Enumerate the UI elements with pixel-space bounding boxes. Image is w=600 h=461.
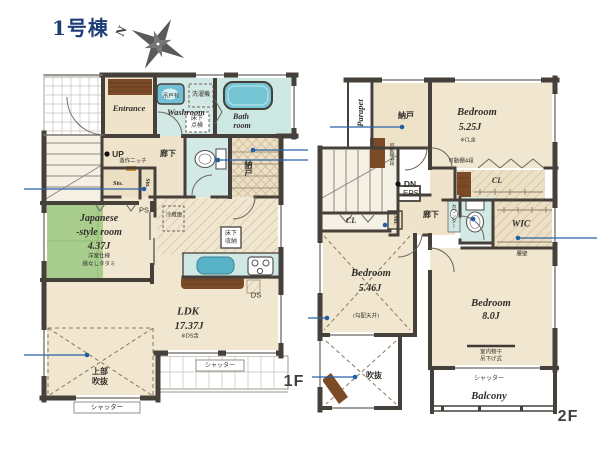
- label-bedroom1-size: 5.25J: [459, 123, 482, 133]
- label-storeroom-2f: 納戸: [398, 112, 414, 120]
- label-bath-2: room: [233, 122, 250, 130]
- label-japanese-room-1: Japanese: [80, 214, 118, 224]
- label-sto-2f: Sto.: [392, 215, 398, 225]
- label-sto-a: Sto.: [113, 181, 123, 188]
- label-japanese-room-2: -style room: [76, 228, 122, 238]
- label-cl-b: CL: [346, 217, 356, 225]
- label-underfloor-storage-2: 収納: [225, 239, 237, 245]
- label-parapet: Parapet: [356, 99, 365, 126]
- label-shelf-b: 可動棚4段: [448, 159, 474, 165]
- label-bedroom2-note: (勾配天井): [353, 314, 379, 320]
- label-storeroom-1f: 納戸: [244, 160, 252, 176]
- label-ldk-size: 17.37J: [175, 322, 204, 333]
- label-niche: 造作ニッチ: [119, 159, 147, 165]
- label-counter: カウンター: [451, 204, 456, 229]
- label-ds: DS: [251, 291, 261, 299]
- label-underfloor-storage-1: 床下: [225, 231, 237, 237]
- label-japanese-note-2: 縁なしタタミ: [82, 262, 115, 268]
- stove-icon: [248, 257, 273, 275]
- toilet-icon-1f: [195, 149, 226, 169]
- label-shelf-a: 可動棚4段: [389, 142, 394, 165]
- label-hallway-1f: 廊下: [160, 150, 176, 158]
- label-bath-1: Bath: [233, 113, 249, 121]
- page-title: 1号棟: [52, 12, 109, 41]
- label-shutter-window: シャッター: [91, 404, 124, 411]
- compass-icon: [118, 5, 197, 83]
- label-shutter-2f: シャッター: [474, 376, 504, 382]
- label-drying-2: 吊下げ式: [480, 357, 502, 363]
- label-drying-1: 室内物干: [480, 350, 502, 356]
- label-balcony: Balcony: [471, 392, 507, 403]
- label-cl-a: CL: [492, 177, 502, 185]
- label-shutter-deck: シャッター: [205, 363, 235, 369]
- label-japanese-room-size: 4.37J: [88, 242, 111, 252]
- up-dot: [104, 151, 109, 156]
- label-entrance: Entrance: [113, 104, 146, 113]
- floor-tag-2f: 2F: [558, 409, 579, 425]
- kitchen-sink-icon: [197, 257, 234, 274]
- label-void-above-1: 上部: [92, 368, 108, 376]
- label-wic: WIC: [512, 220, 530, 230]
- label-bedroom1: Bedroom: [457, 108, 497, 119]
- label-ldk: LDK: [177, 307, 199, 318]
- toilet-icon-2f: [466, 201, 484, 232]
- label-void-above-2: 吹抜: [92, 378, 108, 386]
- label-ldk-note: ※DS含: [181, 334, 199, 340]
- label-void-2f: 吹抜: [366, 372, 382, 380]
- label-bedroom2-size: 5.46J: [359, 284, 382, 294]
- label-sto-b: Sto.: [144, 178, 150, 188]
- label-eps: EPS: [403, 190, 419, 198]
- label-hallway-2f: 廊下: [423, 211, 439, 219]
- label-waist-wall: 腰壁: [516, 252, 527, 258]
- label-up: UP: [112, 150, 124, 159]
- label-bedroom3-size: 8.0J: [482, 312, 500, 322]
- label-bedroom1-note: ※CL含: [460, 139, 475, 144]
- label-hang-cabinet: 吊戸有: [163, 94, 180, 100]
- floorplan-page: 1号棟 N Entrance Washroom 吊戸有 洗濯機 床下 点検 Ba…: [0, 0, 600, 461]
- label-japanese-note-1: 洋室仕様: [88, 254, 110, 260]
- label-fridge: 冷蔵庫: [166, 213, 183, 219]
- label-dn: DN: [404, 180, 416, 189]
- label-underfloor-check-2: 点検: [191, 123, 203, 129]
- label-bedroom3: Bedroom: [471, 299, 511, 310]
- label-ps: PS: [139, 206, 149, 214]
- dn-dot: [395, 181, 400, 186]
- floor-tag-1f: 1F: [284, 374, 305, 390]
- label-washer: 洗濯機: [192, 92, 210, 98]
- label-bedroom2: Bedroom: [351, 269, 391, 280]
